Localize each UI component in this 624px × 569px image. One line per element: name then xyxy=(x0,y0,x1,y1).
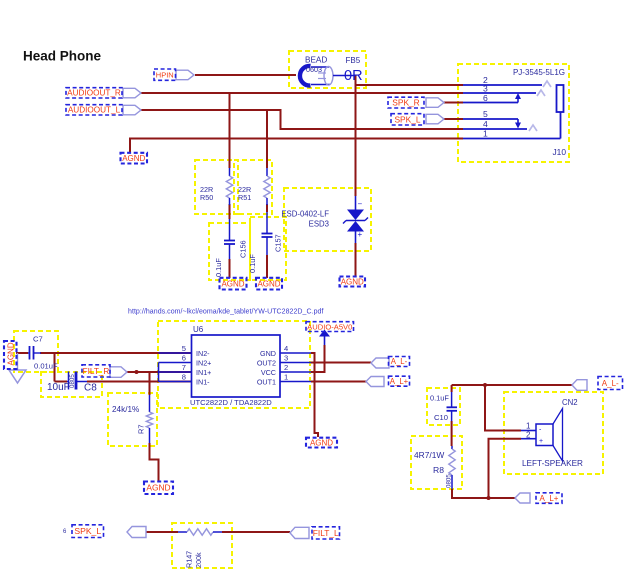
svg-text:0603: 0603 xyxy=(306,65,322,74)
svg-text:2: 2 xyxy=(526,431,531,440)
svg-text:5: 5 xyxy=(483,109,488,119)
svg-text:0.01uF: 0.01uF xyxy=(34,362,58,371)
svg-text:SPK_L: SPK_L xyxy=(74,526,101,536)
svg-text:R8: R8 xyxy=(433,465,444,475)
svg-text:ESD3: ESD3 xyxy=(309,220,329,229)
svg-text:4R7/1W: 4R7/1W xyxy=(414,450,444,460)
svg-text:OUT2: OUT2 xyxy=(257,359,276,368)
svg-text:UTC2822D / TDA2822D: UTC2822D / TDA2822D xyxy=(190,398,272,407)
svg-text:Head Phone: Head Phone xyxy=(23,49,102,64)
svg-text:IN2-: IN2- xyxy=(196,349,210,358)
svg-text:3: 3 xyxy=(483,84,488,94)
svg-text:IN2+: IN2+ xyxy=(196,359,211,368)
svg-text:C7: C7 xyxy=(33,335,43,344)
svg-text:AGND: AGND xyxy=(146,483,170,493)
svg-text:VCC: VCC xyxy=(261,368,276,377)
svg-text:SPK_L: SPK_L xyxy=(394,114,420,124)
svg-text:PJ-3545-5L1G: PJ-3545-5L1G xyxy=(513,68,565,77)
svg-text:AUDIOOUT_R: AUDIOOUT_R xyxy=(67,89,121,98)
svg-text:6: 6 xyxy=(182,354,186,363)
svg-text:AUDIOOUT_L: AUDIOOUT_L xyxy=(68,106,121,115)
svg-text:FILT_L: FILT_L xyxy=(313,528,339,538)
svg-text:3: 3 xyxy=(284,354,288,363)
svg-text:+: + xyxy=(539,438,543,445)
svg-text:CN2: CN2 xyxy=(562,398,578,407)
svg-text:J10: J10 xyxy=(552,147,566,157)
svg-text:R7: R7 xyxy=(137,425,146,434)
svg-text:AUDIO-A5V0: AUDIO-A5V0 xyxy=(307,322,352,331)
svg-text:2: 2 xyxy=(284,363,288,372)
svg-text:AGND: AGND xyxy=(122,154,145,163)
svg-text:1: 1 xyxy=(483,129,488,139)
svg-text:FILT_R: FILT_R xyxy=(83,367,110,376)
svg-text:5: 5 xyxy=(182,344,186,353)
svg-text:0.1uF: 0.1uF xyxy=(248,254,257,273)
svg-text:24k/1%: 24k/1% xyxy=(112,405,139,414)
svg-text:1: 1 xyxy=(284,373,288,382)
svg-text:AGND: AGND xyxy=(221,279,244,288)
svg-text:7: 7 xyxy=(182,363,186,372)
svg-text:0805: 0805 xyxy=(69,374,76,388)
svg-text:LEFT-SPEAKER: LEFT-SPEAKER xyxy=(522,459,583,468)
svg-text:4: 4 xyxy=(483,119,488,129)
svg-text:A_L+: A_L+ xyxy=(390,377,409,386)
svg-text:FB5: FB5 xyxy=(346,56,361,65)
svg-text:BEAD: BEAD xyxy=(305,56,327,65)
svg-text:A_L-: A_L- xyxy=(602,379,619,388)
svg-text:8: 8 xyxy=(182,373,186,382)
svg-text:−: − xyxy=(358,200,363,209)
svg-text:A_L+: A_L+ xyxy=(540,494,559,503)
svg-text:C8: C8 xyxy=(84,383,97,394)
svg-text:ESD-0402-LF: ESD-0402-LF xyxy=(281,210,329,219)
svg-text:200k: 200k xyxy=(194,552,203,568)
svg-text:1: 1 xyxy=(526,422,531,431)
svg-text:R147: R147 xyxy=(185,551,194,568)
svg-text:0.1uF: 0.1uF xyxy=(214,258,223,277)
svg-text:0805: 0805 xyxy=(446,474,453,488)
svg-text:AGND: AGND xyxy=(341,277,364,286)
svg-text:0.1uF: 0.1uF xyxy=(430,394,449,403)
svg-text:OUT1: OUT1 xyxy=(257,378,276,387)
svg-text:AGND: AGND xyxy=(310,438,333,447)
svg-text:0R: 0R xyxy=(344,68,363,84)
svg-text:IN1-: IN1- xyxy=(196,378,210,387)
svg-text:C156: C156 xyxy=(239,240,248,258)
svg-text:AGND: AGND xyxy=(7,342,16,365)
svg-text:SPK_R: SPK_R xyxy=(392,98,419,108)
svg-text:AGND: AGND xyxy=(257,279,280,288)
svg-text:C10: C10 xyxy=(434,413,448,422)
svg-text:IN1+: IN1+ xyxy=(196,368,211,377)
svg-text:GND: GND xyxy=(260,349,276,358)
svg-text:6: 6 xyxy=(483,93,488,103)
svg-text:R50: R50 xyxy=(200,193,213,202)
svg-text:+: + xyxy=(358,230,363,239)
svg-text:R51: R51 xyxy=(238,193,251,202)
svg-text:4: 4 xyxy=(284,344,288,353)
svg-text:HPIN: HPIN xyxy=(156,70,174,79)
svg-text:C157: C157 xyxy=(274,234,283,252)
svg-text:http://hands.com/~lkcl/eoma/kd: http://hands.com/~lkcl/eoma/kde_tablet/Y… xyxy=(128,309,323,316)
svg-text:A_L-: A_L- xyxy=(391,357,408,366)
svg-text:10uF: 10uF xyxy=(47,382,70,393)
svg-text:U6: U6 xyxy=(193,325,204,334)
